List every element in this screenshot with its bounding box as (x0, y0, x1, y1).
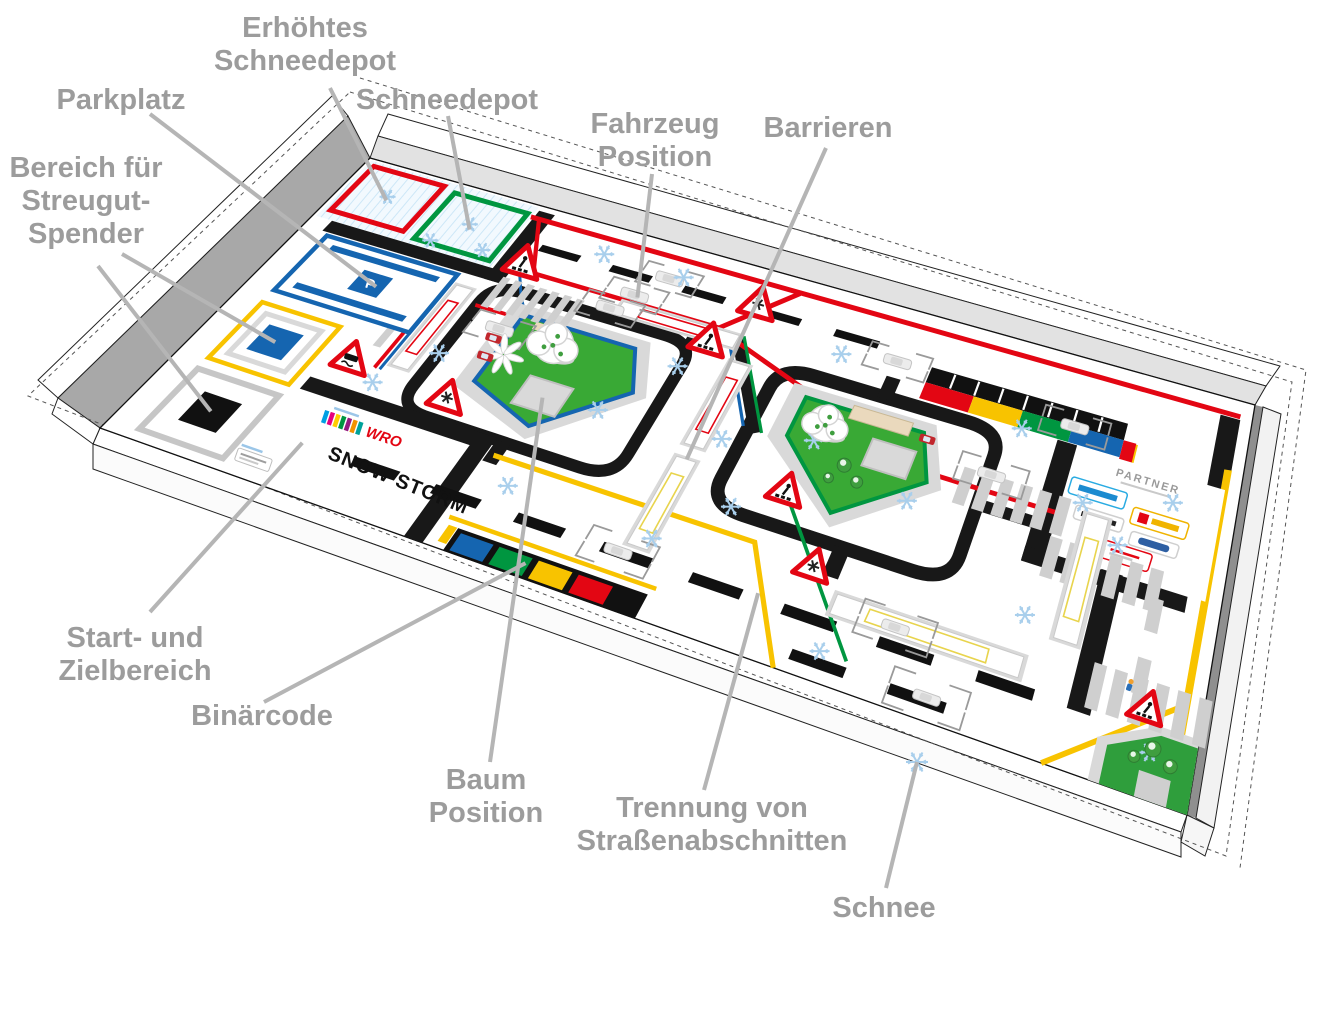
label-line: Trennung von (577, 792, 848, 825)
label-line: Position (429, 797, 543, 830)
label-line: Baum (429, 764, 543, 797)
label-line: Fahrzeug (591, 108, 720, 141)
label-line: Spender (9, 218, 162, 251)
label-line: Barrieren (764, 112, 893, 145)
label-line: Zielbereich (58, 655, 211, 688)
label-line: Schneedepot (214, 45, 396, 78)
label-line: Start- und (58, 622, 211, 655)
leader-line (264, 563, 526, 702)
label-schnee: Schnee (832, 892, 935, 925)
label-line: Binärcode (191, 700, 333, 733)
label-parkplatz: Parkplatz (57, 84, 186, 117)
label-fahrzeug-position: FahrzeugPosition (591, 108, 720, 174)
label-line: Position (591, 141, 720, 174)
label-line: Schneedepot (356, 84, 538, 117)
label-line: Erhöhtes (214, 12, 396, 45)
label-trennung-strassenabschnitte: Trennung vonStraßenabschnitten (577, 792, 848, 858)
label-line: Straßenabschnitten (577, 825, 848, 858)
label-binaercode: Binärcode (191, 700, 333, 733)
label-line: Streugut- (9, 185, 162, 218)
label-line: Parkplatz (57, 84, 186, 117)
label-start-zielbereich: Start- undZielbereich (58, 622, 211, 688)
label-schneedepot: Schneedepot (356, 84, 538, 117)
label-line: Schnee (832, 892, 935, 925)
label-barrieren: Barrieren (764, 112, 893, 145)
label-bereich-streugut-spender: Bereich fürStreugut-Spender (9, 152, 162, 251)
label-erhoehtes-schneedepot: ErhöhtesSchneedepot (214, 12, 396, 78)
diagram-stage: PWROSNOW STORMPARTNER ErhöhtesSchneedepo… (0, 0, 1335, 1017)
label-baum-position: BaumPosition (429, 764, 543, 830)
leader-line (886, 762, 917, 888)
label-line: Bereich für (9, 152, 162, 185)
